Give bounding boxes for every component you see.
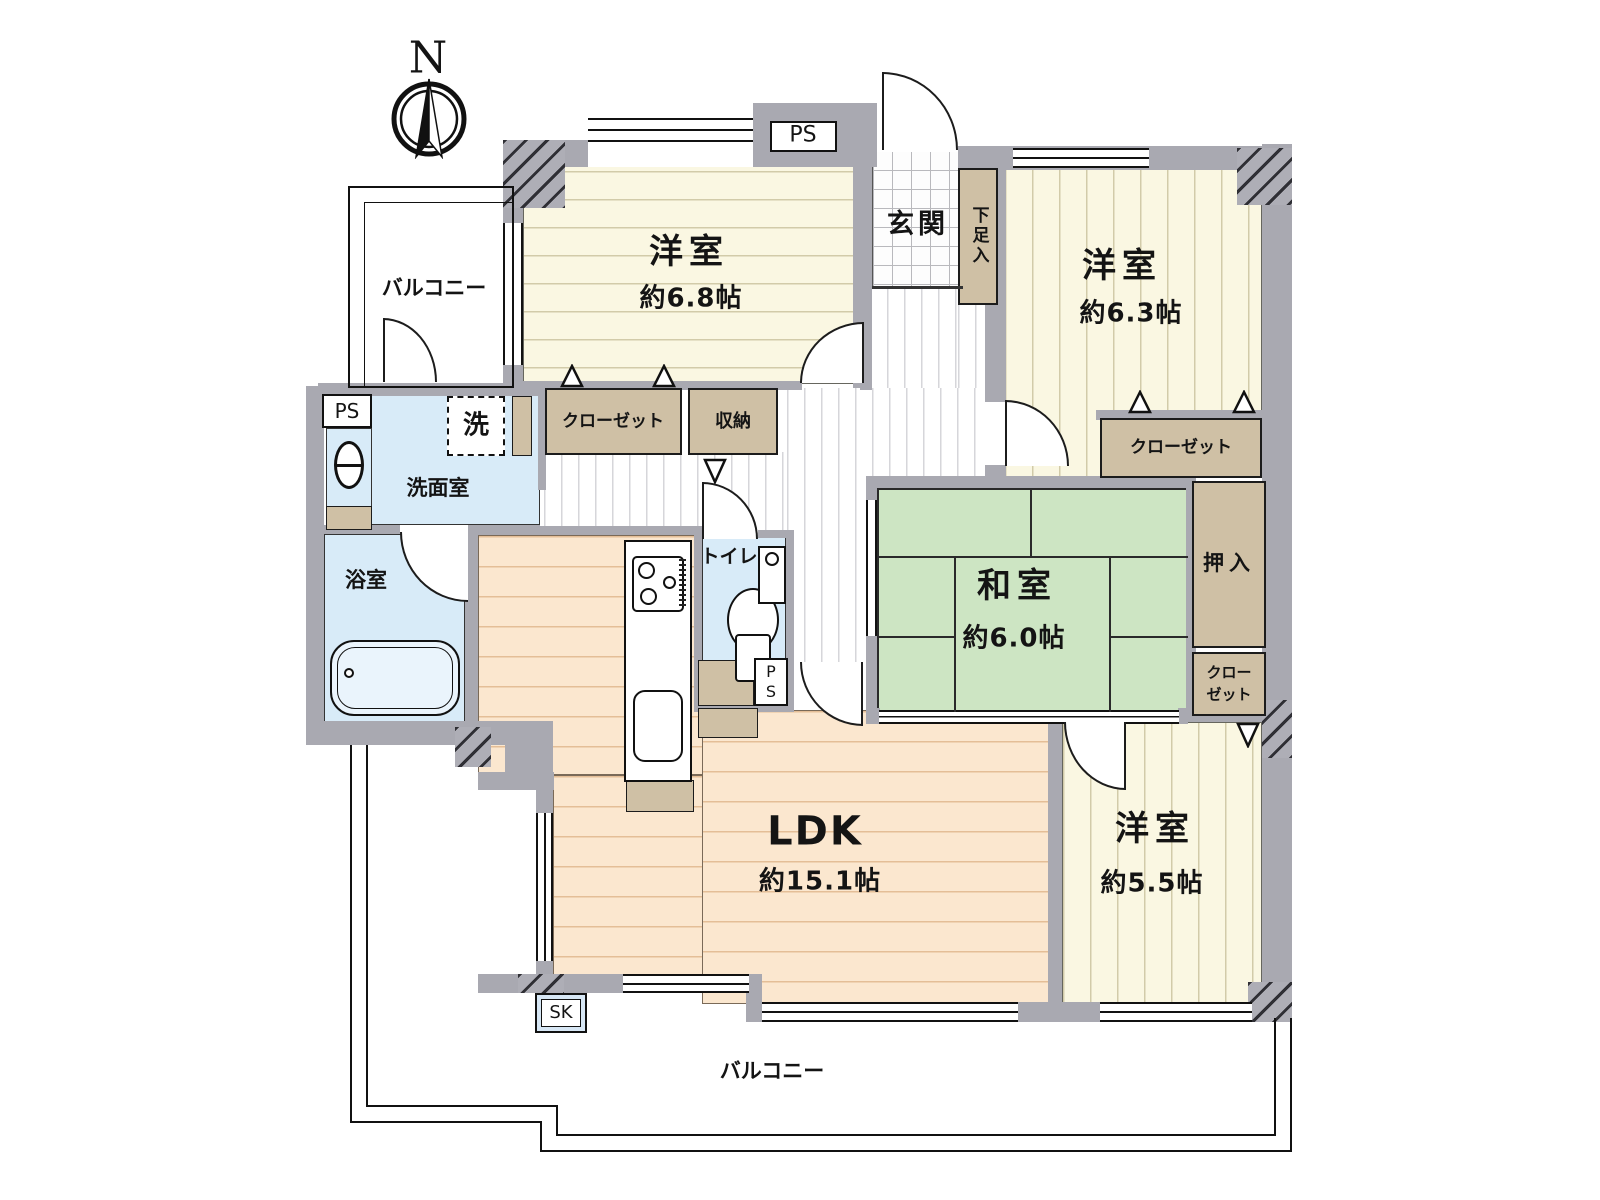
meter-cabinet xyxy=(326,506,372,530)
hallway-upper xyxy=(787,388,985,480)
stove-grill xyxy=(679,559,686,609)
bathroom-label: 浴室 xyxy=(345,569,387,593)
balcony-outline xyxy=(350,745,352,1123)
stove-burner xyxy=(663,576,676,589)
wall xyxy=(866,708,880,724)
folding-door-marker xyxy=(703,458,727,484)
window xyxy=(536,813,553,961)
door-arc-entrance xyxy=(882,72,958,150)
wall xyxy=(1262,144,1292,1022)
balcony-outline xyxy=(540,1150,1292,1152)
window-bay xyxy=(588,138,753,167)
sliding-door xyxy=(866,500,877,636)
tatami-line xyxy=(1111,636,1188,638)
entrance-step-line xyxy=(872,286,963,289)
folding-door-marker xyxy=(652,364,676,388)
room-western-6.8-name: 洋室 xyxy=(649,233,729,271)
balcony-outline xyxy=(556,1105,558,1136)
closet-line2-label: ゼット xyxy=(1206,687,1251,704)
window xyxy=(623,974,749,993)
shoe-box-label: 下足入 xyxy=(968,206,987,266)
hatched-wall xyxy=(1262,700,1292,758)
compass-icon xyxy=(390,77,468,159)
room-ldk-size: 約15.1帖 xyxy=(759,867,881,896)
closet-label: クローゼット xyxy=(562,412,664,431)
pipe-space-label: PS xyxy=(789,124,816,149)
room-japanese-name: 和室 xyxy=(977,567,1057,605)
sliding-door xyxy=(879,710,1179,724)
hallway-entrance xyxy=(870,288,966,388)
window xyxy=(762,1002,1018,1022)
tatami-line xyxy=(877,636,954,638)
tatami-line xyxy=(954,558,956,712)
tatami-line xyxy=(877,556,1188,558)
room-japanese-size: 約6.0帖 xyxy=(962,624,1065,653)
wall xyxy=(306,386,324,745)
wall xyxy=(478,772,554,790)
storage-label: 収納 xyxy=(715,412,751,432)
washroom-label: 洗面室 xyxy=(407,477,470,501)
wall xyxy=(505,721,553,773)
folding-door-marker xyxy=(560,364,584,388)
room-western-5.5-size: 約5.5帖 xyxy=(1100,869,1203,898)
meter-dial-icon xyxy=(765,552,779,566)
balcony-outline xyxy=(1274,1018,1276,1136)
wall xyxy=(306,721,528,745)
room-western-6.3-name: 洋室 xyxy=(1082,247,1162,285)
door-opening xyxy=(985,402,1006,465)
floor-plan: N バルコニー バルコニー 洋室 約6.8帖 洋室 約6.3帖 和室 約6.0帖… xyxy=(0,0,1600,1200)
hatched-wall xyxy=(518,974,564,993)
window xyxy=(1100,1002,1252,1022)
slop-sink-label: SK xyxy=(549,1003,572,1023)
hatched-wall xyxy=(455,727,491,767)
balcony-outline xyxy=(556,1134,1276,1136)
pipe-space-label: PS xyxy=(335,400,360,422)
wall xyxy=(758,530,788,538)
bathtub-inner xyxy=(337,647,453,709)
kitchen-sink xyxy=(633,690,683,762)
room-western-6.8-size: 約6.8帖 xyxy=(639,284,742,313)
room-western-6.3-size: 約6.3帖 xyxy=(1079,299,1182,328)
meter-dial-icon xyxy=(334,441,364,489)
stove-burner xyxy=(640,588,657,605)
wall xyxy=(866,636,877,712)
stove-burner xyxy=(638,562,655,579)
balcony-outline xyxy=(366,1105,558,1107)
balcony-outline xyxy=(350,1121,542,1123)
hatched-wall xyxy=(1237,148,1292,205)
balcony-left-label: バルコニー xyxy=(382,277,487,301)
room-ldk-name: LDK xyxy=(767,810,863,855)
balcony-outline xyxy=(540,1121,542,1152)
balcony-outline xyxy=(1290,1018,1292,1152)
balcony-outline xyxy=(366,745,368,1107)
oshiire-label: 押入 xyxy=(1203,552,1255,576)
closet-line1-label: クロー xyxy=(1206,665,1251,682)
room-western-5.5-name: 洋室 xyxy=(1115,810,1195,848)
tatami-line xyxy=(1030,488,1032,558)
window xyxy=(1013,148,1149,168)
window xyxy=(588,118,753,142)
closet-box xyxy=(1192,652,1266,716)
compass-north-label: N xyxy=(409,33,448,82)
kitchen-cabinet xyxy=(626,780,694,812)
bathtub-drain xyxy=(344,668,354,678)
pipe-space-s-label: S xyxy=(766,683,776,701)
folding-door-marker xyxy=(1128,390,1152,414)
pipe-space-p-label: P xyxy=(766,663,776,681)
pipe-chase xyxy=(698,708,758,738)
wall xyxy=(478,526,704,535)
wall xyxy=(1048,710,1062,1004)
washing-machine-label: 洗 xyxy=(463,411,489,440)
ldk-main-floor xyxy=(702,710,1052,1004)
tatami-line xyxy=(1109,558,1111,712)
folding-door-marker xyxy=(1232,390,1256,414)
balcony-bottom-label: バルコニー xyxy=(720,1060,825,1084)
wall xyxy=(866,488,877,500)
entrance-label: 玄関 xyxy=(887,210,949,240)
closet-label: クローゼット xyxy=(1130,438,1232,457)
hatched-wall xyxy=(1248,982,1292,1022)
counter-cabinet xyxy=(512,396,532,456)
toilet-label: トイレ xyxy=(700,546,757,567)
toilet-meter-box xyxy=(758,546,786,604)
hallway-lower xyxy=(787,480,870,662)
folding-door-marker xyxy=(1236,722,1260,748)
